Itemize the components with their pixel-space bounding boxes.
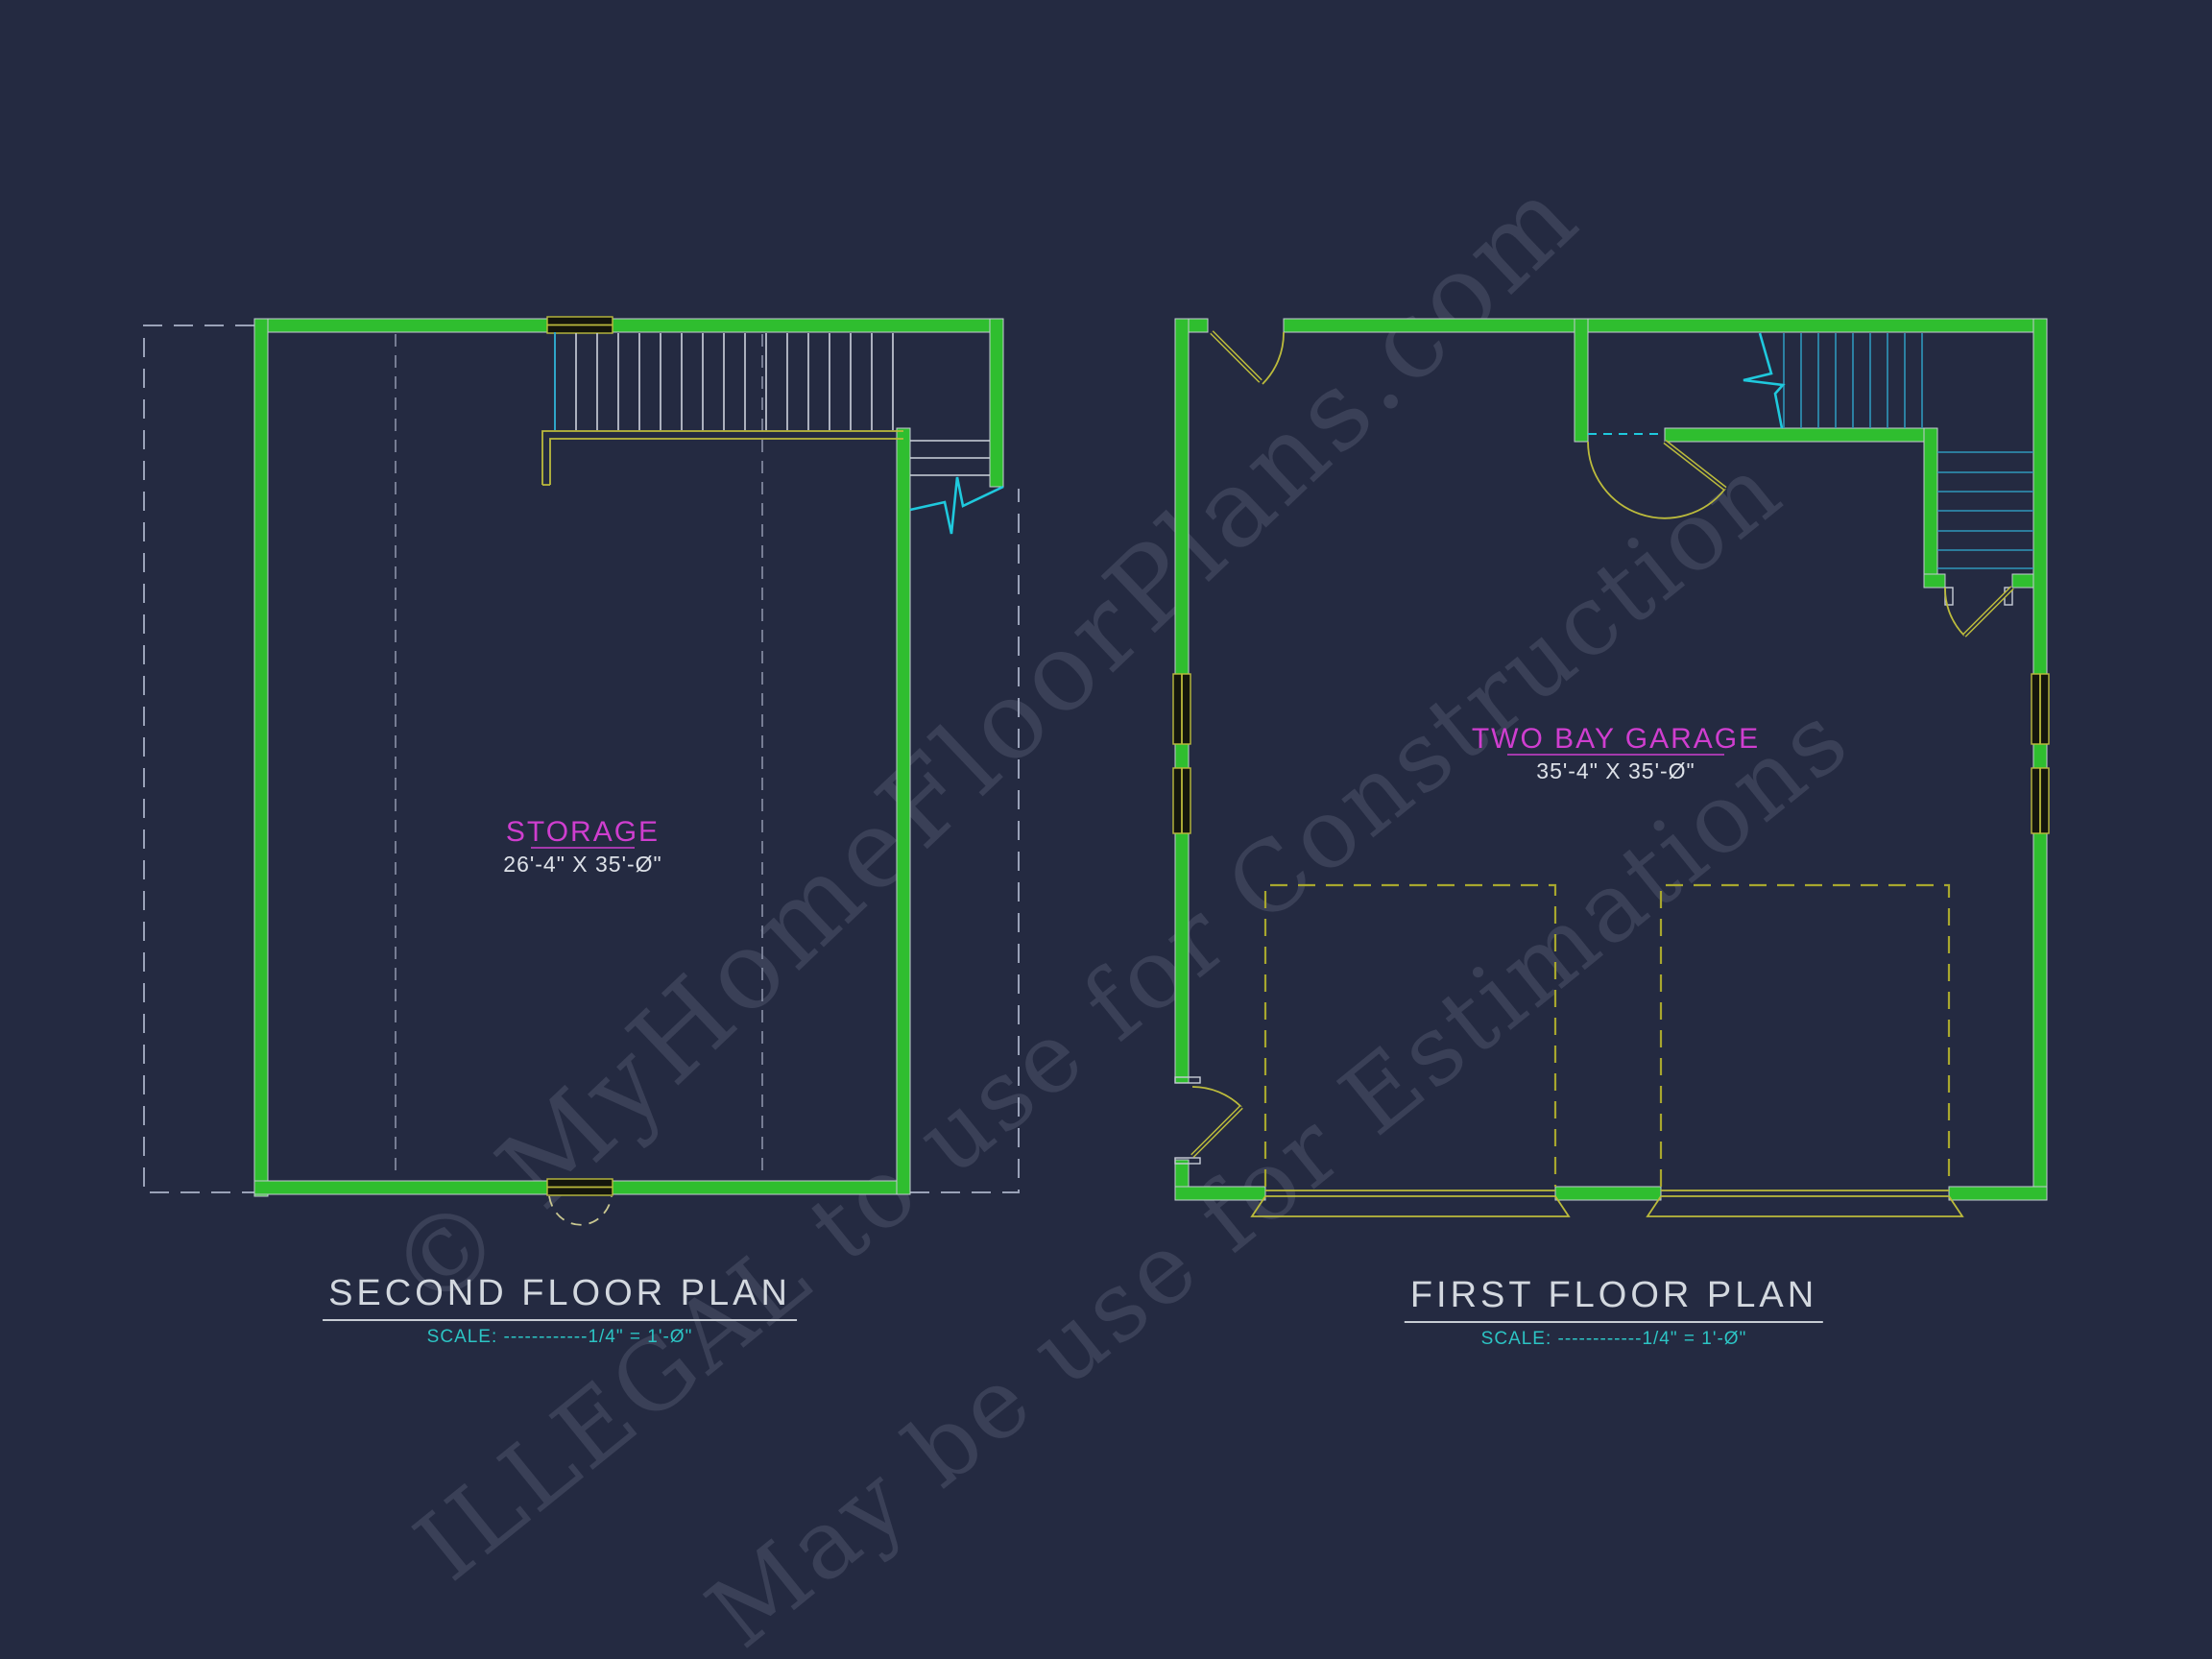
storage-top-window (547, 317, 613, 333)
floor-plan-sheet: © MyHomeFloorPlans.com ILLEGAL to use fo… (0, 0, 2212, 1659)
top-wall-right-seg (613, 319, 1003, 332)
garage-left-window-1 (1173, 674, 1190, 744)
second-floor-title: SECOND FLOOR PLAN (323, 1273, 797, 1321)
garage-room-label: TWO BAY GARAGE (1472, 723, 1760, 755)
bottom-window-dashed-arc (549, 1196, 612, 1225)
first-floor-title: FIRST FLOOR PLAN (1405, 1275, 1823, 1323)
top-wall-right-seg (1284, 319, 2047, 332)
garage-right-window-1 (2032, 674, 2049, 744)
storage-room-dimensions: 26'-4" X 35'-Ø" (503, 852, 661, 877)
stair-door-wall-right (2012, 574, 2033, 588)
stair-lower-steps (910, 441, 990, 475)
stair-enclosure-walls (1575, 319, 2033, 588)
knee-wall-dashed-lines (396, 334, 762, 1179)
left-wall-seg-1 (1175, 319, 1189, 674)
stair-west-wall (1924, 428, 1937, 588)
stair-lower-treads (1937, 452, 2033, 568)
vestibule-door-arc (1588, 442, 1725, 518)
side-door (1175, 1077, 1241, 1164)
overhang-dashed-outline-left (144, 325, 254, 1192)
storage-room-label: STORAGE (506, 816, 660, 848)
garage-stair (1743, 333, 2033, 568)
stair-upper-treads (1784, 333, 1922, 428)
garage-door-bay-2 (1647, 885, 1962, 1216)
garage-left-window-2 (1173, 768, 1190, 833)
side-door-arc (1192, 1087, 1241, 1107)
right-wall-seg-2 (2033, 744, 2047, 768)
exterior-walls (254, 319, 1003, 1196)
storage-bottom-window (547, 1179, 613, 1225)
left-wall (254, 319, 268, 1196)
cad-drawing: STORAGE 26'-4" X 35'-Ø" (0, 0, 2212, 1659)
garage-door-threshold (1252, 1190, 1569, 1216)
storage-stair (542, 332, 1003, 534)
overhang-dashed-outline-right (910, 489, 1019, 1192)
stair-bottom-door (1945, 588, 2012, 636)
second-floor-scale: SCALE: ------------1/4" = 1'-Ø" (323, 1327, 797, 1348)
stair-south-wall (1665, 428, 1937, 442)
bottom-wall-seg-2 (1555, 1187, 1661, 1200)
garage-door-threshold (1647, 1190, 1962, 1216)
left-wall-seg-3 (1175, 833, 1189, 1083)
stair-break-line (1743, 333, 1783, 428)
interior-right-wall (897, 428, 910, 1194)
vestibule-wall (1575, 319, 1588, 442)
first-floor-title-block: FIRST FLOOR PLAN SCALE: ------------1/4"… (1405, 1275, 1823, 1350)
entry-door (1212, 332, 1284, 384)
garage-right-window-2 (2032, 768, 2049, 833)
first-floor-scale: SCALE: ------------1/4" = 1'-Ø" (1405, 1329, 1823, 1350)
stair-door-wall-left (1924, 574, 1945, 588)
entry-door-arc (1262, 332, 1284, 384)
bottom-wall-left-seg (254, 1181, 547, 1194)
stair-door-arc (1945, 588, 1964, 636)
vestibule-door (1588, 434, 1725, 518)
left-wall-seg-2 (1175, 744, 1189, 768)
bottom-wall-seg-1 (1175, 1187, 1265, 1200)
garage-door-bay-1 (1252, 885, 1569, 1216)
right-wall-seg-3 (2033, 833, 2047, 1200)
second-floor-plan: STORAGE 26'-4" X 35'-Ø" (144, 317, 1019, 1225)
garage-room-dimensions: 35'-4" X 35'-Ø" (1536, 758, 1695, 783)
stair-break-line (910, 477, 1003, 534)
stair-treads (576, 333, 893, 430)
second-floor-title-block: SECOND FLOOR PLAN SCALE: ------------1/4… (323, 1273, 797, 1348)
right-outer-wall (990, 319, 1003, 487)
right-wall-seg-1 (2033, 319, 2047, 674)
bottom-wall-right-seg (613, 1181, 910, 1194)
bottom-wall-seg-3 (1949, 1187, 2047, 1200)
overhead-door-dashed-panel (1265, 885, 1555, 1187)
first-floor-plan: TWO BAY GARAGE 35'-4" X 35'-Ø" (1173, 319, 2049, 1216)
stair-stringer (542, 431, 903, 485)
overhead-door-dashed-panel (1661, 885, 1949, 1187)
top-wall-left-seg (254, 319, 547, 332)
